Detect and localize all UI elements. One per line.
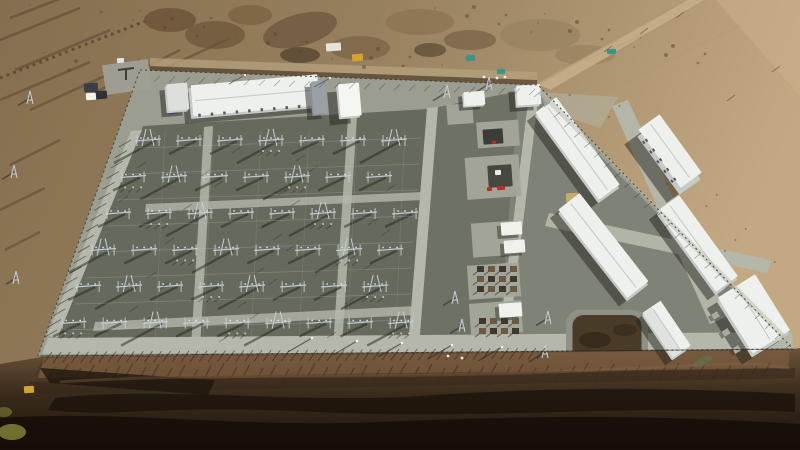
excavator bbox=[24, 386, 34, 394]
insulator bbox=[106, 320, 108, 322]
insulator bbox=[240, 210, 242, 212]
light-pole bbox=[329, 77, 331, 79]
insulator bbox=[169, 283, 171, 285]
insulator bbox=[236, 320, 238, 322]
insulator bbox=[329, 210, 331, 212]
insulator bbox=[371, 174, 373, 176]
insulator bbox=[195, 320, 197, 322]
excavation-patch bbox=[444, 30, 496, 50]
insulator bbox=[150, 247, 152, 249]
insulator bbox=[176, 283, 178, 285]
insulator bbox=[117, 210, 119, 212]
apparatus bbox=[400, 332, 402, 334]
rock-dot bbox=[163, 26, 167, 30]
insulator bbox=[344, 174, 346, 176]
insulator bbox=[355, 247, 357, 249]
insulator bbox=[102, 247, 104, 249]
rock-dot bbox=[724, 250, 726, 252]
excavator bbox=[352, 54, 363, 62]
insulator bbox=[128, 283, 130, 285]
insulator bbox=[65, 320, 67, 322]
capacitor-unit bbox=[501, 328, 508, 334]
rock-dot bbox=[266, 41, 270, 45]
rock-dot bbox=[774, 261, 776, 263]
insulator bbox=[165, 210, 167, 212]
rock-dot bbox=[568, 29, 572, 33]
capacitor-unit bbox=[488, 266, 495, 272]
apparatus bbox=[140, 186, 142, 188]
door bbox=[198, 114, 201, 117]
insulator bbox=[292, 283, 294, 285]
insulator bbox=[120, 320, 122, 322]
rock-dot bbox=[575, 20, 579, 24]
insulator bbox=[370, 210, 372, 212]
light-pole bbox=[501, 346, 504, 349]
insulator bbox=[251, 283, 253, 285]
insulator bbox=[147, 137, 149, 139]
insulator bbox=[188, 137, 190, 139]
insulator bbox=[296, 174, 298, 176]
insulator bbox=[299, 283, 301, 285]
rock-dot bbox=[544, 13, 546, 15]
insulator bbox=[285, 283, 287, 285]
rock-dot bbox=[210, 17, 213, 20]
insulator bbox=[236, 137, 238, 139]
apparatus bbox=[392, 332, 394, 334]
rock-dot bbox=[43, 52, 45, 54]
insulator bbox=[311, 137, 313, 139]
insulator bbox=[273, 247, 275, 249]
insulator bbox=[181, 137, 183, 139]
capacitor-unit bbox=[512, 328, 519, 334]
apparatus bbox=[366, 296, 368, 298]
rock-dot bbox=[402, 65, 405, 68]
insulator bbox=[311, 320, 313, 322]
insulator bbox=[352, 320, 354, 322]
rock-dot bbox=[362, 65, 366, 69]
insulator bbox=[222, 137, 224, 139]
rock-dot bbox=[306, 41, 309, 44]
insulator bbox=[333, 283, 335, 285]
rock-dot bbox=[74, 59, 78, 63]
capacitor-unit bbox=[510, 286, 517, 292]
capacitor-unit bbox=[501, 318, 508, 324]
insulator bbox=[214, 174, 216, 176]
door bbox=[236, 110, 239, 113]
rock-dot bbox=[434, 7, 436, 9]
capacitor-unit bbox=[490, 318, 497, 324]
insulator bbox=[326, 283, 328, 285]
aerial-photo bbox=[0, 0, 800, 450]
apparatus bbox=[408, 332, 410, 334]
capacitor-unit bbox=[479, 318, 486, 324]
capacitor-unit bbox=[477, 276, 484, 282]
van bbox=[117, 58, 124, 63]
capacitor-unit bbox=[499, 266, 506, 272]
container-teal bbox=[497, 69, 505, 75]
rock-dot bbox=[608, 29, 611, 32]
insulator bbox=[188, 320, 190, 322]
insulator bbox=[255, 174, 257, 176]
rock-dot bbox=[633, 46, 635, 48]
rock-dot bbox=[273, 32, 277, 36]
door bbox=[273, 107, 276, 110]
rock-dot bbox=[139, 10, 141, 12]
insulator bbox=[363, 210, 365, 212]
apparatus bbox=[288, 186, 290, 188]
fire-system bbox=[497, 186, 505, 191]
light-pole bbox=[356, 340, 359, 343]
rock-dot bbox=[530, 31, 532, 33]
insulator bbox=[125, 174, 127, 176]
rock-dot bbox=[376, 47, 380, 51]
capacitor-unit bbox=[499, 286, 506, 292]
insulator bbox=[161, 320, 163, 322]
rock-dot bbox=[331, 58, 333, 60]
rock-dot bbox=[664, 53, 668, 57]
building-roof bbox=[166, 82, 189, 111]
rock-dot bbox=[618, 105, 620, 107]
insulator bbox=[247, 210, 249, 212]
apparatus bbox=[278, 150, 280, 152]
insulator bbox=[314, 247, 316, 249]
apparatus bbox=[382, 296, 384, 298]
insulator bbox=[244, 283, 246, 285]
rock-dot bbox=[745, 228, 747, 230]
insulator bbox=[173, 174, 175, 176]
insulator bbox=[158, 210, 160, 212]
insulator bbox=[151, 210, 153, 212]
rock-dot bbox=[569, 94, 571, 96]
insulator bbox=[277, 320, 279, 322]
apparatus bbox=[340, 259, 342, 261]
insulator bbox=[203, 283, 205, 285]
substation-aerial-scene bbox=[0, 0, 800, 450]
rock-dot bbox=[505, 14, 508, 17]
insulator bbox=[136, 247, 138, 249]
insulator bbox=[281, 210, 283, 212]
insulator bbox=[135, 283, 137, 285]
insulator bbox=[389, 247, 391, 249]
insulator bbox=[270, 320, 272, 322]
insulator bbox=[356, 210, 358, 212]
insulator bbox=[396, 247, 398, 249]
insulator bbox=[289, 174, 291, 176]
apparatus bbox=[72, 332, 74, 334]
insulator bbox=[325, 320, 327, 322]
worker-dot bbox=[504, 76, 507, 79]
insulator bbox=[192, 210, 194, 212]
apparatus bbox=[262, 150, 264, 152]
rock-dot bbox=[196, 35, 199, 38]
capacitor-unit bbox=[510, 276, 517, 282]
worker-dot bbox=[447, 355, 450, 358]
light-pole bbox=[311, 337, 314, 340]
rock-dot bbox=[716, 194, 718, 196]
capacitor-unit bbox=[488, 286, 495, 292]
insulator bbox=[95, 247, 97, 249]
spoil-heap bbox=[500, 19, 580, 51]
insulator bbox=[143, 247, 145, 249]
apparatus bbox=[132, 186, 134, 188]
insulator bbox=[397, 210, 399, 212]
rock-dot bbox=[498, 23, 501, 26]
building-roof bbox=[311, 80, 328, 114]
rock-dot bbox=[132, 19, 134, 21]
worker-dot bbox=[496, 77, 499, 80]
insulator bbox=[191, 247, 193, 249]
excavation-patch bbox=[386, 9, 454, 35]
insulator bbox=[386, 137, 388, 139]
capacitor-unit bbox=[490, 328, 497, 334]
container-teal bbox=[466, 55, 475, 62]
rock-dot bbox=[734, 239, 736, 241]
insulator bbox=[284, 320, 286, 322]
insulator bbox=[87, 283, 89, 285]
main-transformer bbox=[487, 164, 512, 188]
insulator bbox=[113, 320, 115, 322]
insulator bbox=[318, 137, 320, 139]
insulator bbox=[411, 210, 413, 212]
mound bbox=[144, 8, 196, 32]
insulator bbox=[124, 210, 126, 212]
insulator bbox=[315, 210, 317, 212]
insulator bbox=[382, 247, 384, 249]
rock-dot bbox=[697, 62, 700, 65]
apparatus bbox=[374, 296, 376, 298]
light-pole bbox=[451, 344, 454, 347]
door bbox=[223, 111, 226, 114]
insulator bbox=[318, 320, 320, 322]
apparatus bbox=[176, 259, 178, 261]
insulator bbox=[233, 210, 235, 212]
light-pole bbox=[401, 342, 404, 345]
worker-dot bbox=[483, 76, 486, 79]
rock-dot bbox=[705, 205, 707, 207]
mound bbox=[228, 5, 272, 25]
apparatus bbox=[244, 332, 246, 334]
apparatus bbox=[330, 223, 332, 225]
rock-dot bbox=[369, 56, 373, 60]
building-roof bbox=[516, 84, 541, 106]
insulator bbox=[229, 320, 231, 322]
insulator bbox=[177, 247, 179, 249]
apparatus bbox=[228, 332, 230, 334]
equipment-cabin bbox=[499, 302, 523, 318]
insulator bbox=[374, 283, 376, 285]
insulator bbox=[210, 283, 212, 285]
capacitor-unit bbox=[512, 318, 519, 324]
tarp bbox=[326, 42, 342, 51]
insulator bbox=[330, 174, 332, 176]
rock-dot bbox=[36, 61, 38, 63]
apparatus bbox=[296, 186, 298, 188]
door bbox=[211, 113, 214, 116]
capacitor-unit bbox=[499, 276, 506, 282]
rock-dot bbox=[235, 34, 237, 36]
insulator bbox=[217, 283, 219, 285]
insulator bbox=[184, 247, 186, 249]
apparatus bbox=[314, 223, 316, 225]
rock-dot bbox=[441, 64, 443, 66]
insulator bbox=[140, 137, 142, 139]
capacitor-unit bbox=[477, 286, 484, 292]
trench bbox=[414, 43, 446, 57]
capacitor-unit bbox=[488, 276, 495, 282]
insulator bbox=[288, 210, 290, 212]
insulator bbox=[110, 210, 112, 212]
pond-dark-patch bbox=[613, 324, 637, 336]
equipment-cabin bbox=[501, 221, 523, 235]
rock-dot bbox=[608, 116, 610, 118]
fire-system bbox=[487, 187, 492, 191]
insulator bbox=[258, 283, 260, 285]
light-pole bbox=[244, 74, 246, 76]
badlands bbox=[0, 348, 800, 450]
pond-dark-patch bbox=[579, 332, 611, 348]
insulator bbox=[243, 320, 245, 322]
insulator bbox=[221, 174, 223, 176]
capacitor-unit bbox=[477, 266, 484, 272]
rock-dot bbox=[601, 38, 604, 41]
apparatus bbox=[218, 296, 220, 298]
truck bbox=[84, 83, 99, 93]
apparatus bbox=[348, 259, 350, 261]
insulator bbox=[207, 174, 209, 176]
apparatus bbox=[202, 296, 204, 298]
rock-dot bbox=[640, 37, 642, 39]
insulator bbox=[162, 283, 164, 285]
insulator bbox=[270, 137, 272, 139]
apparatus bbox=[210, 296, 212, 298]
apparatus bbox=[304, 186, 306, 188]
apparatus bbox=[236, 332, 238, 334]
insulator bbox=[277, 137, 279, 139]
insulator bbox=[262, 174, 264, 176]
insulator bbox=[378, 174, 380, 176]
insulator bbox=[72, 320, 74, 322]
insulator bbox=[195, 137, 197, 139]
insulator bbox=[337, 174, 339, 176]
apparatus bbox=[124, 186, 126, 188]
insulator bbox=[248, 174, 250, 176]
container-teal bbox=[607, 49, 616, 55]
insulator bbox=[166, 174, 168, 176]
insulator bbox=[385, 174, 387, 176]
door bbox=[248, 109, 251, 112]
door bbox=[260, 108, 263, 111]
insulator bbox=[80, 283, 82, 285]
capacitor-unit bbox=[479, 328, 486, 334]
apparatus bbox=[80, 332, 82, 334]
building-roof bbox=[463, 91, 485, 106]
rock-dot bbox=[299, 50, 302, 53]
insulator bbox=[303, 174, 305, 176]
rock-dot bbox=[465, 14, 469, 18]
rock-dot bbox=[704, 53, 707, 56]
trench bbox=[280, 47, 320, 63]
insulator bbox=[381, 283, 383, 285]
apparatus bbox=[192, 259, 194, 261]
insulator bbox=[109, 247, 111, 249]
insulator bbox=[322, 210, 324, 212]
valve bbox=[492, 141, 496, 144]
insulator bbox=[180, 174, 182, 176]
door bbox=[298, 105, 301, 108]
insulator bbox=[341, 247, 343, 249]
insulator bbox=[307, 247, 309, 249]
insulator bbox=[345, 137, 347, 139]
rock-dot bbox=[537, 22, 539, 24]
container-white bbox=[86, 93, 96, 101]
insulator bbox=[404, 210, 406, 212]
insulator bbox=[352, 137, 354, 139]
apparatus bbox=[356, 259, 358, 261]
rock-dot bbox=[67, 68, 71, 72]
equipment-cabin bbox=[504, 239, 526, 253]
rock-dot bbox=[29, 4, 31, 6]
truck bbox=[95, 91, 108, 100]
worker-dot bbox=[461, 357, 464, 360]
rock-dot bbox=[472, 5, 476, 9]
rock-dot bbox=[100, 11, 103, 14]
insulator bbox=[359, 137, 361, 139]
insulator bbox=[367, 283, 369, 285]
insulator bbox=[274, 210, 276, 212]
rock-dot bbox=[242, 25, 244, 27]
rock-dot bbox=[671, 44, 675, 48]
transformer-top bbox=[495, 170, 501, 175]
apparatus bbox=[270, 150, 272, 152]
insulator bbox=[263, 137, 265, 139]
insulator bbox=[348, 247, 350, 249]
insulator bbox=[94, 283, 96, 285]
door bbox=[285, 106, 288, 109]
insulator bbox=[300, 247, 302, 249]
insulator bbox=[229, 137, 231, 139]
insulator bbox=[121, 283, 123, 285]
insulator bbox=[304, 137, 306, 139]
insulator bbox=[199, 210, 201, 212]
apparatus bbox=[322, 223, 324, 225]
rock-dot bbox=[203, 26, 206, 29]
insulator bbox=[154, 137, 156, 139]
rock-dot bbox=[170, 17, 174, 21]
insulator bbox=[79, 320, 81, 322]
apparatus bbox=[64, 332, 66, 334]
capacitor-unit bbox=[510, 266, 517, 272]
apparatus bbox=[184, 259, 186, 261]
insulator bbox=[206, 210, 208, 212]
insulator bbox=[340, 283, 342, 285]
rock-dot bbox=[409, 56, 412, 59]
